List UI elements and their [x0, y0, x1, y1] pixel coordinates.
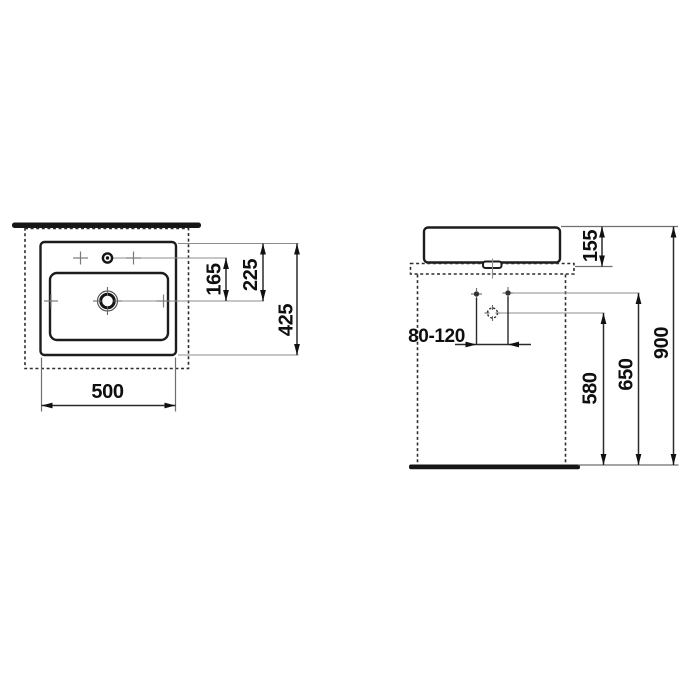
- dim-580: 580: [580, 313, 607, 465]
- arrow-up-icon: [260, 244, 266, 255]
- dim-155-label: 155: [580, 230, 602, 262]
- wall-line: [12, 223, 201, 229]
- technical-drawing-canvas: 165 225 425 500: [0, 0, 700, 700]
- dim-225: 225: [240, 244, 266, 302]
- dim-580-label: 580: [580, 372, 602, 404]
- dim-165: 165: [204, 258, 229, 301]
- dim-225-label: 225: [240, 259, 262, 291]
- drain-ring: [101, 294, 115, 308]
- waste-connection: [485, 305, 501, 321]
- dim-425: 425: [276, 244, 300, 356]
- dim-650: 650: [616, 293, 642, 465]
- arrow-up-icon: [601, 313, 607, 324]
- arrow-up-icon: [294, 244, 300, 255]
- arrow-right-icon: [165, 403, 176, 409]
- arrow-left-icon: [42, 403, 53, 409]
- arrow-down-icon: [294, 344, 300, 355]
- arrow-right-icon: [466, 342, 477, 348]
- arrow-down-icon: [601, 454, 607, 465]
- basin-body: [424, 228, 560, 263]
- faucet-hole-center: [106, 256, 109, 259]
- dim-900: 900: [651, 227, 676, 466]
- dim-500: 500: [42, 358, 176, 412]
- top-view: 165 225 425 500: [12, 223, 300, 412]
- washbasin-dimension-diagram: 165 225 425 500: [0, 0, 700, 700]
- arrow-down-icon: [671, 454, 677, 465]
- dim-80-120: 80-120: [408, 297, 531, 348]
- floor-line: [409, 465, 580, 470]
- dim-80-120-label: 80-120: [408, 326, 465, 347]
- arrow-up-icon: [671, 227, 677, 238]
- arrow-up-icon: [636, 293, 642, 304]
- dim-650-label: 650: [616, 358, 638, 390]
- dim-155: 155: [580, 227, 605, 267]
- faucet-hole: [103, 253, 112, 262]
- arrow-left-icon: [508, 342, 519, 348]
- dim-500-label: 500: [91, 381, 123, 403]
- dim-165-label: 165: [204, 263, 226, 295]
- dim-425-label: 425: [276, 304, 298, 336]
- dim-900-label: 900: [651, 327, 673, 359]
- arrow-down-icon: [636, 454, 642, 465]
- front-view: 155 80-120 580 650: [408, 227, 678, 470]
